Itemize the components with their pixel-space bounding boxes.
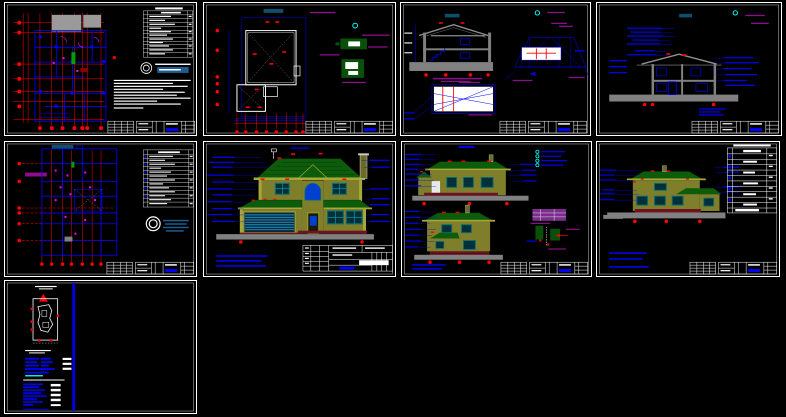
drawing-title-bar bbox=[679, 14, 692, 18]
sheet-second-floor-plan[interactable] bbox=[4, 141, 197, 277]
sheet-roof-plan[interactable] bbox=[203, 2, 396, 136]
legend-block-2 bbox=[23, 383, 60, 409]
general-notes bbox=[114, 80, 191, 109]
revision-cloud bbox=[146, 217, 160, 231]
cad-model-space[interactable] bbox=[0, 0, 786, 417]
sheet-rear-elevation[interactable] bbox=[596, 141, 780, 277]
title-block bbox=[306, 121, 393, 133]
wall-piers bbox=[39, 36, 105, 108]
sheet-side-elevations[interactable] bbox=[401, 141, 592, 277]
dimension-grid bbox=[234, 113, 306, 129]
top-callout bbox=[291, 147, 309, 153]
roof-outline bbox=[237, 31, 300, 112]
inner-border bbox=[206, 5, 392, 133]
room-schedule-table bbox=[143, 150, 193, 207]
drawing-title-bar bbox=[445, 14, 460, 18]
legend-rule bbox=[23, 380, 64, 381]
inner-border bbox=[599, 5, 778, 133]
hatch-patch bbox=[65, 237, 73, 242]
drawing-title-bar bbox=[52, 145, 74, 149]
title-block bbox=[692, 121, 779, 133]
sheet-front-elevation[interactable] bbox=[203, 141, 396, 277]
cloud-notes bbox=[163, 220, 189, 232]
title-mark bbox=[76, 145, 82, 148]
sheet-title bbox=[35, 286, 57, 289]
floor-plan-walls bbox=[42, 149, 117, 255]
lower-side-elevation bbox=[414, 205, 503, 264]
fireplace bbox=[80, 68, 88, 72]
title-block bbox=[108, 121, 195, 133]
gutter-detail-2 bbox=[341, 59, 364, 78]
bottom-notes bbox=[412, 264, 446, 269]
title-block bbox=[501, 262, 588, 274]
stair-flight bbox=[71, 52, 75, 64]
building-section bbox=[404, 22, 493, 82]
section-drawing bbox=[609, 53, 738, 106]
house-elevation bbox=[216, 149, 374, 244]
title-block bbox=[107, 262, 194, 274]
detail-bubble bbox=[733, 11, 737, 15]
left-callouts bbox=[609, 28, 676, 74]
column-grid bbox=[17, 150, 114, 264]
grid-bubbles bbox=[17, 21, 103, 130]
grid-bubbles bbox=[17, 162, 102, 266]
upper-side-elevation bbox=[412, 155, 528, 206]
balcony-hatch bbox=[25, 173, 47, 177]
detail-with-table bbox=[527, 209, 580, 250]
stairwell-x bbox=[74, 189, 102, 211]
divider-line bbox=[72, 283, 74, 411]
sheet-site-plan[interactable] bbox=[4, 280, 197, 414]
inner-border bbox=[7, 283, 193, 411]
legend-block-1 bbox=[25, 358, 71, 377]
title-block bbox=[500, 121, 587, 133]
terrace-hatch bbox=[52, 15, 101, 32]
approval-bar bbox=[155, 64, 190, 73]
legend bbox=[536, 150, 567, 166]
floor-plan-walls bbox=[35, 31, 106, 122]
section-mark bbox=[113, 56, 116, 59]
truss-detail-right bbox=[505, 11, 589, 81]
bottom-notes bbox=[216, 255, 267, 266]
drawing-title-bar bbox=[264, 9, 284, 13]
title-block bbox=[690, 262, 777, 274]
note-text bbox=[310, 12, 336, 13]
door-markers bbox=[55, 170, 96, 235]
title-block-large bbox=[303, 245, 393, 271]
bottom-note bbox=[699, 108, 726, 115]
finish-schedule-table bbox=[727, 144, 776, 212]
drawing-title bbox=[459, 146, 475, 148]
legend-title bbox=[25, 350, 51, 353]
bottom-notes bbox=[609, 252, 648, 267]
sheet-first-floor-plan[interactable] bbox=[4, 2, 197, 136]
sheet-section-details[interactable] bbox=[400, 2, 591, 136]
right-callouts bbox=[710, 15, 769, 86]
stamp-logo bbox=[141, 63, 152, 74]
gutter-detail-1 bbox=[335, 38, 367, 49]
room-schedule-table bbox=[143, 7, 192, 57]
detail-bubble bbox=[353, 23, 358, 28]
sheet-cross-section[interactable] bbox=[596, 2, 782, 136]
site-plan-drawing bbox=[31, 294, 60, 343]
stair-up bbox=[71, 162, 74, 168]
formwork-detail-lower bbox=[404, 82, 495, 120]
